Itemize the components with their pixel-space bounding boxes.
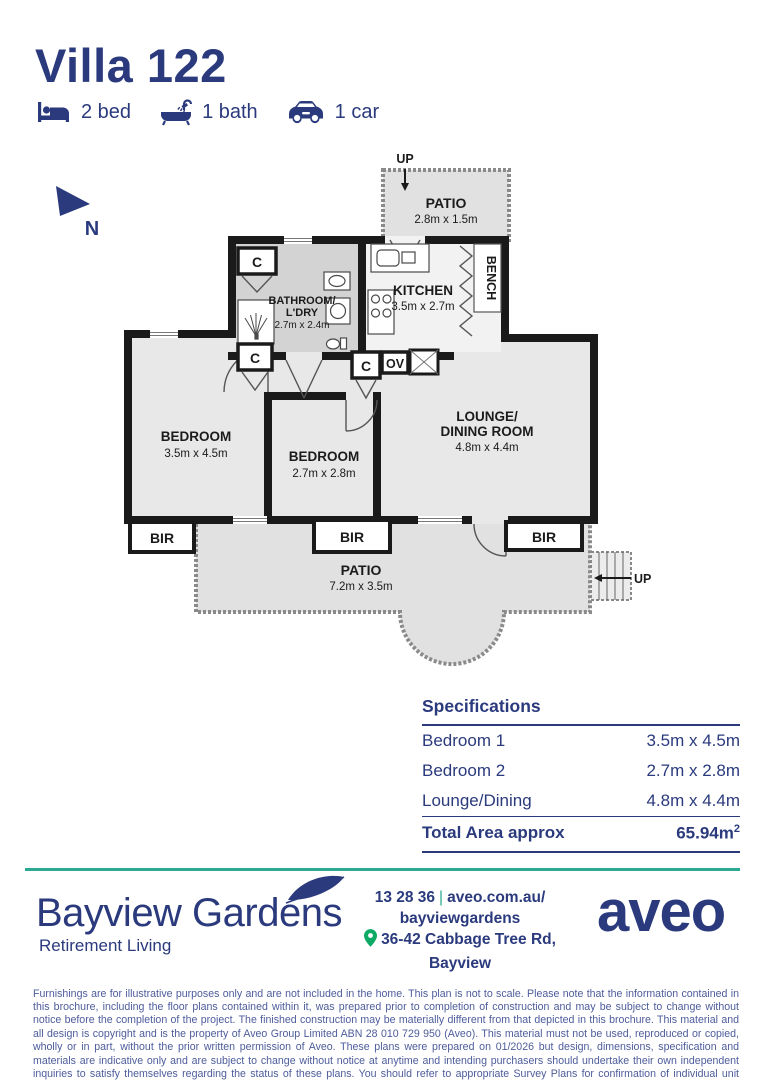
brand-tagline: Retirement Living — [39, 936, 171, 956]
feature-baths: 1 bath — [159, 98, 258, 126]
specifications-table: Specifications Bedroom 1 3.5m x 4.5m Bed… — [422, 696, 740, 853]
lounge-name-1: LOUNGE/ — [456, 409, 518, 424]
stairs-bottom: UP — [591, 552, 651, 600]
contact-block: 13 28 36|aveo.com.au/ bayviewgardens 36-… — [338, 887, 582, 974]
patio-bottom-name: PATIO — [341, 562, 382, 578]
patio-bottom-dims: 7.2m x 3.5m — [329, 581, 392, 593]
total-label: Total Area approx — [422, 817, 614, 852]
feature-baths-label: 1 bath — [202, 101, 258, 124]
bench-label: BENCH — [484, 256, 498, 300]
bathroom-name-1: BATHROOM/ — [268, 295, 335, 307]
contact-line-3: 36-42 Cabbage Tree Rd, Bayview — [338, 929, 582, 974]
north-compass: N — [50, 183, 112, 241]
bathroom-name-2: L'DRY — [286, 307, 319, 319]
spec-label: Lounge/Dining — [422, 786, 614, 817]
specifications-heading: Specifications — [422, 696, 740, 726]
feature-beds-label: 2 bed — [81, 101, 131, 124]
cupboard-label-3: C — [361, 358, 371, 374]
spec-label: Bedroom 2 — [422, 756, 614, 786]
separator: | — [435, 889, 447, 906]
disclaimer-text: Furnishings are for illustrative purpose… — [33, 988, 739, 1080]
north-label: N — [85, 218, 99, 240]
feature-beds: 2 bed — [36, 99, 131, 126]
footer-divider — [25, 868, 740, 871]
lounge-name-2: DINING ROOM — [441, 424, 534, 439]
brochure-page: Villa 122 2 bed — [0, 0, 764, 1080]
bedroom2-dims: 2.7m x 2.8m — [292, 468, 355, 480]
bedroom2-name: BEDROOM — [289, 449, 360, 464]
cupboard-label-1: C — [252, 254, 262, 270]
floor-plan: PATIO 2.8m x 1.5m UP PATIO 7.2m x 3.5m U… — [118, 148, 666, 683]
contact-line-1: 13 28 36|aveo.com.au/ — [338, 887, 582, 908]
feature-cars: 1 car — [286, 99, 379, 125]
car-icon — [286, 99, 326, 125]
location-pin-icon — [364, 929, 377, 953]
table-row: Bedroom 2 2.7m x 2.8m — [422, 756, 740, 786]
page-title: Villa 122 — [35, 38, 227, 93]
spec-value: 3.5m x 4.5m — [614, 726, 740, 756]
spec-label: Bedroom 1 — [422, 726, 614, 756]
feature-cars-label: 1 car — [335, 101, 379, 124]
total-value: 65.94m2 — [614, 817, 740, 852]
website-url[interactable]: aveo.com.au/ — [447, 889, 545, 906]
patio-top-name: PATIO — [426, 195, 467, 211]
up-bottom-label: UP — [634, 572, 651, 586]
phone-number: 13 28 36 — [375, 889, 435, 906]
table-row: Lounge/Dining 4.8m x 4.4m — [422, 786, 740, 817]
feature-row: 2 bed 1 bath — [36, 98, 379, 126]
bir-label-2: BIR — [340, 529, 364, 545]
table-row: Bedroom 1 3.5m x 4.5m — [422, 726, 740, 756]
bath-icon — [159, 98, 193, 126]
up-top-label: UP — [396, 152, 413, 166]
bir-label-1: BIR — [150, 530, 174, 546]
bathroom-dims: 2.7m x 2.4m — [274, 320, 329, 331]
patio-top: PATIO 2.8m x 1.5m — [383, 170, 509, 240]
bench: BENCH — [474, 244, 501, 312]
spec-value: 2.7m x 2.8m — [614, 756, 740, 786]
oven-label: OV — [386, 357, 405, 371]
address: 36-42 Cabbage Tree Rd, Bayview — [381, 931, 556, 972]
bir-label-3: BIR — [532, 529, 556, 545]
north-arrow-icon — [56, 186, 90, 216]
kitchen-name: KITCHEN — [393, 283, 453, 298]
bedroom1-dims: 3.5m x 4.5m — [164, 448, 227, 460]
total-row: Total Area approx 65.94m2 — [422, 817, 740, 852]
lounge-dims: 4.8m x 4.4m — [455, 442, 518, 454]
bedroom1-name: BEDROOM — [161, 429, 232, 444]
contact-line-2[interactable]: bayviewgardens — [338, 908, 582, 929]
patio-top-dims: 2.8m x 1.5m — [414, 214, 477, 226]
spec-value: 4.8m x 4.4m — [614, 786, 740, 817]
cupboard-label-2: C — [250, 350, 260, 366]
aveo-logo: aveo — [597, 878, 725, 945]
bed-icon — [36, 99, 72, 126]
kitchen-dims: 3.5m x 2.7m — [391, 301, 454, 313]
